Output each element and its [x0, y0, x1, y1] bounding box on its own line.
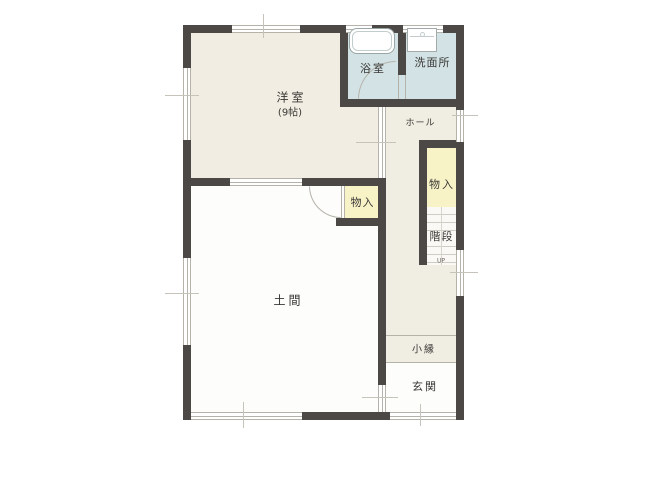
wall-stairs-left	[419, 140, 427, 265]
room-label-doma: 土間	[270, 292, 303, 309]
wall-left-c	[183, 345, 191, 420]
wall-right-c	[456, 296, 464, 420]
window-right-lower	[456, 250, 464, 296]
dimension-tick	[420, 404, 421, 426]
wall-western-doma-a	[191, 178, 230, 186]
room-label-entrance: 玄関	[410, 378, 438, 394]
door-leaf-closet-doma2	[344, 186, 345, 218]
wall-bottom-doma	[302, 412, 390, 420]
dimension-tick	[165, 95, 199, 96]
wall-main-vertical	[378, 186, 386, 385]
veranda-bottom-line	[386, 362, 456, 363]
wall-closet-doma-bottom	[336, 218, 386, 226]
wall-bath-left	[340, 25, 348, 107]
room-label-closet-hall: 物入	[427, 176, 455, 192]
door-leaf-closet-doma	[341, 186, 342, 218]
wall-right-a	[456, 25, 464, 110]
wall-right-b	[456, 142, 464, 250]
window-left-lower	[183, 258, 191, 345]
veranda-top-line	[386, 335, 456, 336]
dimension-tick	[243, 402, 244, 428]
dimension-tick	[356, 142, 396, 143]
wall-western-doma-b	[302, 178, 386, 186]
dimension-tick	[263, 14, 264, 38]
opening-fusuma	[230, 178, 302, 186]
room-label-bathroom: 浴室	[358, 60, 386, 76]
stairs-up-label: UP	[437, 258, 445, 265]
room-label-closet-doma: 物入	[350, 194, 375, 210]
door-doma-south	[191, 412, 302, 420]
room-label-washroom: 洗面所	[414, 54, 451, 70]
wall-stairs-top	[419, 140, 456, 148]
bathtub-icon	[349, 28, 395, 54]
wall-left-a	[183, 25, 191, 68]
dimension-tick	[362, 397, 398, 398]
door-entrance	[390, 412, 456, 420]
room-label-hall: ホール	[404, 116, 435, 129]
sink-icon	[407, 28, 437, 52]
window-top-west	[232, 25, 300, 33]
opening-doma-entrance	[378, 385, 386, 412]
room-size-western: (9帖)	[278, 104, 302, 119]
bath-door-strip	[398, 75, 406, 99]
dimension-tick	[452, 115, 478, 116]
dimension-tick	[165, 293, 199, 294]
floor-plan-canvas: 洋室 (9帖) 浴室 洗面所 ホール 物入 物入 階段 UP 土間 小縁 玄関	[0, 0, 650, 488]
dimension-tick	[450, 272, 478, 273]
room-label-veranda: 小縁	[410, 341, 436, 356]
wall-bath-bottom	[340, 99, 464, 107]
wall-left-b	[183, 140, 191, 258]
room-label-stairs: 階段	[429, 228, 454, 244]
window-left-upper	[183, 68, 191, 140]
